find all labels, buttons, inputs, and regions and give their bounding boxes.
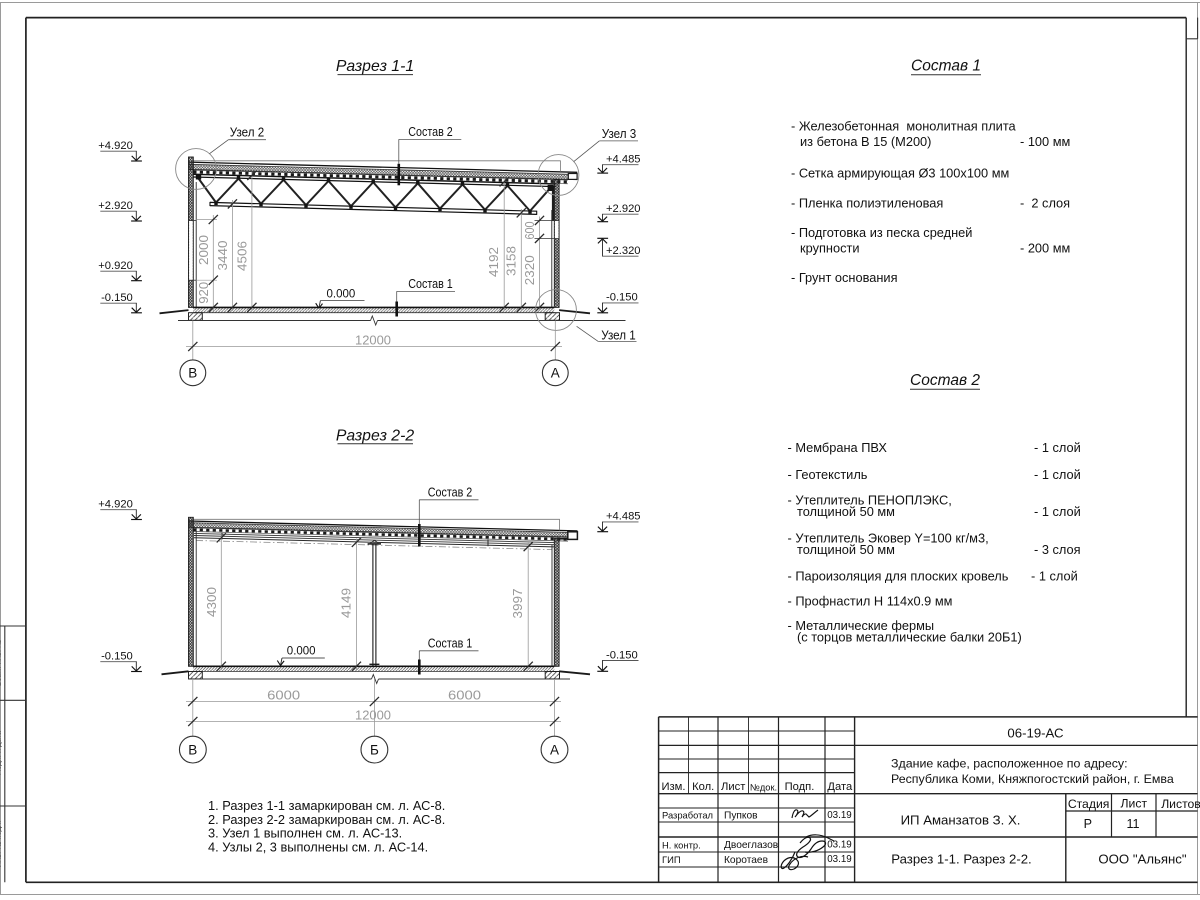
svg-text:4300: 4300	[204, 587, 219, 617]
svg-text:4149: 4149	[338, 588, 353, 618]
svg-text:В: В	[188, 742, 197, 757]
svg-text:- Мембрана ПВХ: - Мембрана ПВХ	[788, 440, 888, 455]
svg-text:4192: 4192	[486, 247, 501, 277]
svg-text:2. Разрез 2-2 замаркирован см.: 2. Разрез 2-2 замаркирован см. л. АС-8.	[208, 812, 445, 827]
svg-text:ИП Аманзатов З. Х.: ИП Аманзатов З. Х.	[901, 813, 1021, 828]
svg-text:Состав 2: Состав 2	[910, 372, 980, 389]
svg-text:3. Узел 1 выполнен см. л. АС-1: 3. Узел 1 выполнен см. л. АС-13.	[208, 826, 402, 841]
svg-text:- Геотекстиль: - Геотекстиль	[788, 467, 868, 482]
svg-text:Кол.: Кол.	[692, 781, 714, 793]
svg-text:- 2 слоя: - 2 слоя	[1020, 196, 1070, 211]
svg-text:Состав 2: Состав 2	[408, 125, 453, 139]
svg-text:Состав 1: Состав 1	[911, 57, 981, 74]
svg-text:Узел 3: Узел 3	[602, 127, 637, 141]
svg-text:0.000: 0.000	[287, 645, 316, 657]
svg-text:+4.485: +4.485	[606, 511, 641, 523]
svg-text:Двоеглазов: Двоеглазов	[724, 840, 778, 851]
svg-text:Н. контр.: Н. контр.	[662, 840, 701, 851]
svg-text:Б: Б	[370, 742, 379, 757]
svg-text:Листов: Листов	[1161, 797, 1200, 811]
svg-text:6000: 6000	[448, 687, 481, 702]
svg-text:Взам. инв. №: Взам. инв. №	[0, 640, 3, 686]
svg-text:2320: 2320	[522, 255, 537, 285]
svg-text:ГИП: ГИП	[662, 854, 681, 865]
svg-text:ООО "Альянс": ООО "Альянс"	[1098, 851, 1186, 866]
svg-text:03.19: 03.19	[827, 840, 852, 851]
svg-text:3158: 3158	[504, 246, 519, 276]
svg-text:+4.485: +4.485	[606, 154, 641, 166]
svg-text:Разрез 1-1. Разрез 2-2.: Разрез 1-1. Разрез 2-2.	[891, 852, 1031, 867]
svg-text:крупности: крупности	[800, 241, 860, 256]
svg-text:Подп.: Подп.	[785, 781, 815, 793]
svg-text:Пупков: Пупков	[724, 811, 758, 822]
svg-text:- Пленка полиэтиленовая: - Пленка полиэтиленовая	[791, 196, 943, 211]
svg-text:Инв. № подл.: Инв. № подл.	[0, 821, 3, 868]
svg-text:11: 11	[1126, 817, 1139, 831]
svg-text:Разрез 2-2: Разрез 2-2	[336, 427, 414, 444]
svg-text:12000: 12000	[355, 332, 391, 347]
svg-text:№док.: №док.	[750, 782, 777, 792]
svg-text:- Сетка армирующая Ø3 100х100: - Сетка армирующая Ø3 100х100 мм	[791, 166, 1009, 181]
svg-text:+2.920: +2.920	[98, 200, 133, 212]
svg-text:Стадия: Стадия	[1068, 797, 1110, 811]
svg-text:- 3 слоя: - 3 слоя	[1034, 542, 1081, 557]
svg-text:- Грунт основания: - Грунт основания	[791, 270, 898, 285]
svg-text:1. Разрез 1-1 замаркирован см.: 1. Разрез 1-1 замаркирован см. л. АС-8.	[208, 798, 445, 813]
svg-text:- 1 слой: - 1 слой	[1031, 568, 1078, 583]
svg-text:- Железобетонная монолитная п: - Железобетонная монолитная плита	[791, 119, 1017, 134]
svg-text:600: 600	[522, 222, 537, 240]
svg-text:Дата: Дата	[827, 781, 853, 793]
svg-text:12000: 12000	[355, 707, 391, 722]
svg-text:Коротаев: Коротаев	[724, 855, 768, 866]
svg-text:4. Узлы 2, 3 выполнены см. л.: 4. Узлы 2, 3 выполнены см. л. АС-14.	[208, 840, 428, 855]
svg-text:В: В	[188, 365, 197, 380]
svg-text:06-19-АС: 06-19-АС	[1007, 725, 1064, 740]
svg-text:- 1 слой: - 1 слой	[1034, 504, 1081, 519]
svg-text:(с торцов металлические балки: (с торцов металлические балки 20Б1)	[797, 630, 1022, 645]
svg-text:3440: 3440	[215, 241, 230, 271]
svg-text:-0.150: -0.150	[606, 649, 638, 661]
svg-text:Подп. и дата: Подп. и дата	[0, 730, 3, 775]
svg-text:+4.920: +4.920	[98, 140, 133, 152]
svg-text:3997: 3997	[510, 589, 525, 619]
svg-text:А: А	[550, 742, 559, 757]
svg-text:- Профнастил Н 114х0.9 мм: - Профнастил Н 114х0.9 мм	[788, 593, 953, 608]
svg-text:0.000: 0.000	[327, 289, 356, 301]
svg-text:Здание кафе, расположенное по: Здание кафе, расположенное по адресу:	[891, 757, 1128, 771]
svg-text:- Подготовка из песка средней: - Подготовка из песка средней	[791, 225, 972, 240]
svg-text:Лист: Лист	[721, 781, 745, 793]
svg-text:Изм.: Изм.	[662, 781, 686, 793]
svg-text:+2.920: +2.920	[606, 203, 641, 215]
svg-text:Состав 2: Состав 2	[428, 486, 473, 500]
svg-text:Узел 2: Узел 2	[230, 126, 265, 140]
svg-text:Разрез 1-1: Разрез 1-1	[336, 58, 414, 75]
svg-text:Состав 1: Состав 1	[408, 277, 453, 291]
svg-text:-0.150: -0.150	[101, 292, 133, 304]
svg-text:Республика Коми, Княжпогостски: Республика Коми, Княжпогостский район, г…	[891, 772, 1174, 786]
svg-text:- Пароизоляция для плоских кро: - Пароизоляция для плоских кровель	[788, 568, 1009, 583]
svg-text:+2.320: +2.320	[606, 245, 641, 257]
svg-text:толщиной 50 мм: толщиной 50 мм	[797, 504, 895, 519]
svg-text:Узел 1: Узел 1	[601, 328, 636, 342]
svg-text:6000: 6000	[267, 687, 300, 702]
svg-text:+4.920: +4.920	[98, 499, 133, 511]
svg-text:2000: 2000	[196, 235, 211, 265]
svg-text:Лист: Лист	[1121, 796, 1148, 810]
svg-text:Состав 1: Состав 1	[428, 637, 473, 651]
svg-text:- 100 мм: - 100 мм	[1020, 134, 1070, 149]
svg-text:+0.920: +0.920	[98, 260, 133, 272]
svg-text:- 1 слой: - 1 слой	[1034, 440, 1081, 455]
svg-text:- 1 слой: - 1 слой	[1034, 467, 1081, 482]
svg-text:Р: Р	[1084, 817, 1092, 831]
svg-text:4506: 4506	[235, 241, 250, 271]
svg-text:-0.150: -0.150	[101, 651, 133, 663]
svg-text:920: 920	[196, 282, 211, 304]
svg-text:03.19: 03.19	[827, 810, 852, 821]
svg-text:толщиной 50 мм: толщиной 50 мм	[797, 542, 895, 557]
svg-text:Разработал: Разработал	[662, 809, 713, 820]
svg-text:из бетона В 15 (М200): из бетона В 15 (М200)	[800, 134, 931, 149]
svg-text:А: А	[551, 365, 560, 380]
svg-text:- 200 мм: - 200 мм	[1020, 241, 1070, 256]
svg-text:-0.150: -0.150	[606, 292, 638, 304]
svg-text:03.19: 03.19	[827, 854, 852, 865]
